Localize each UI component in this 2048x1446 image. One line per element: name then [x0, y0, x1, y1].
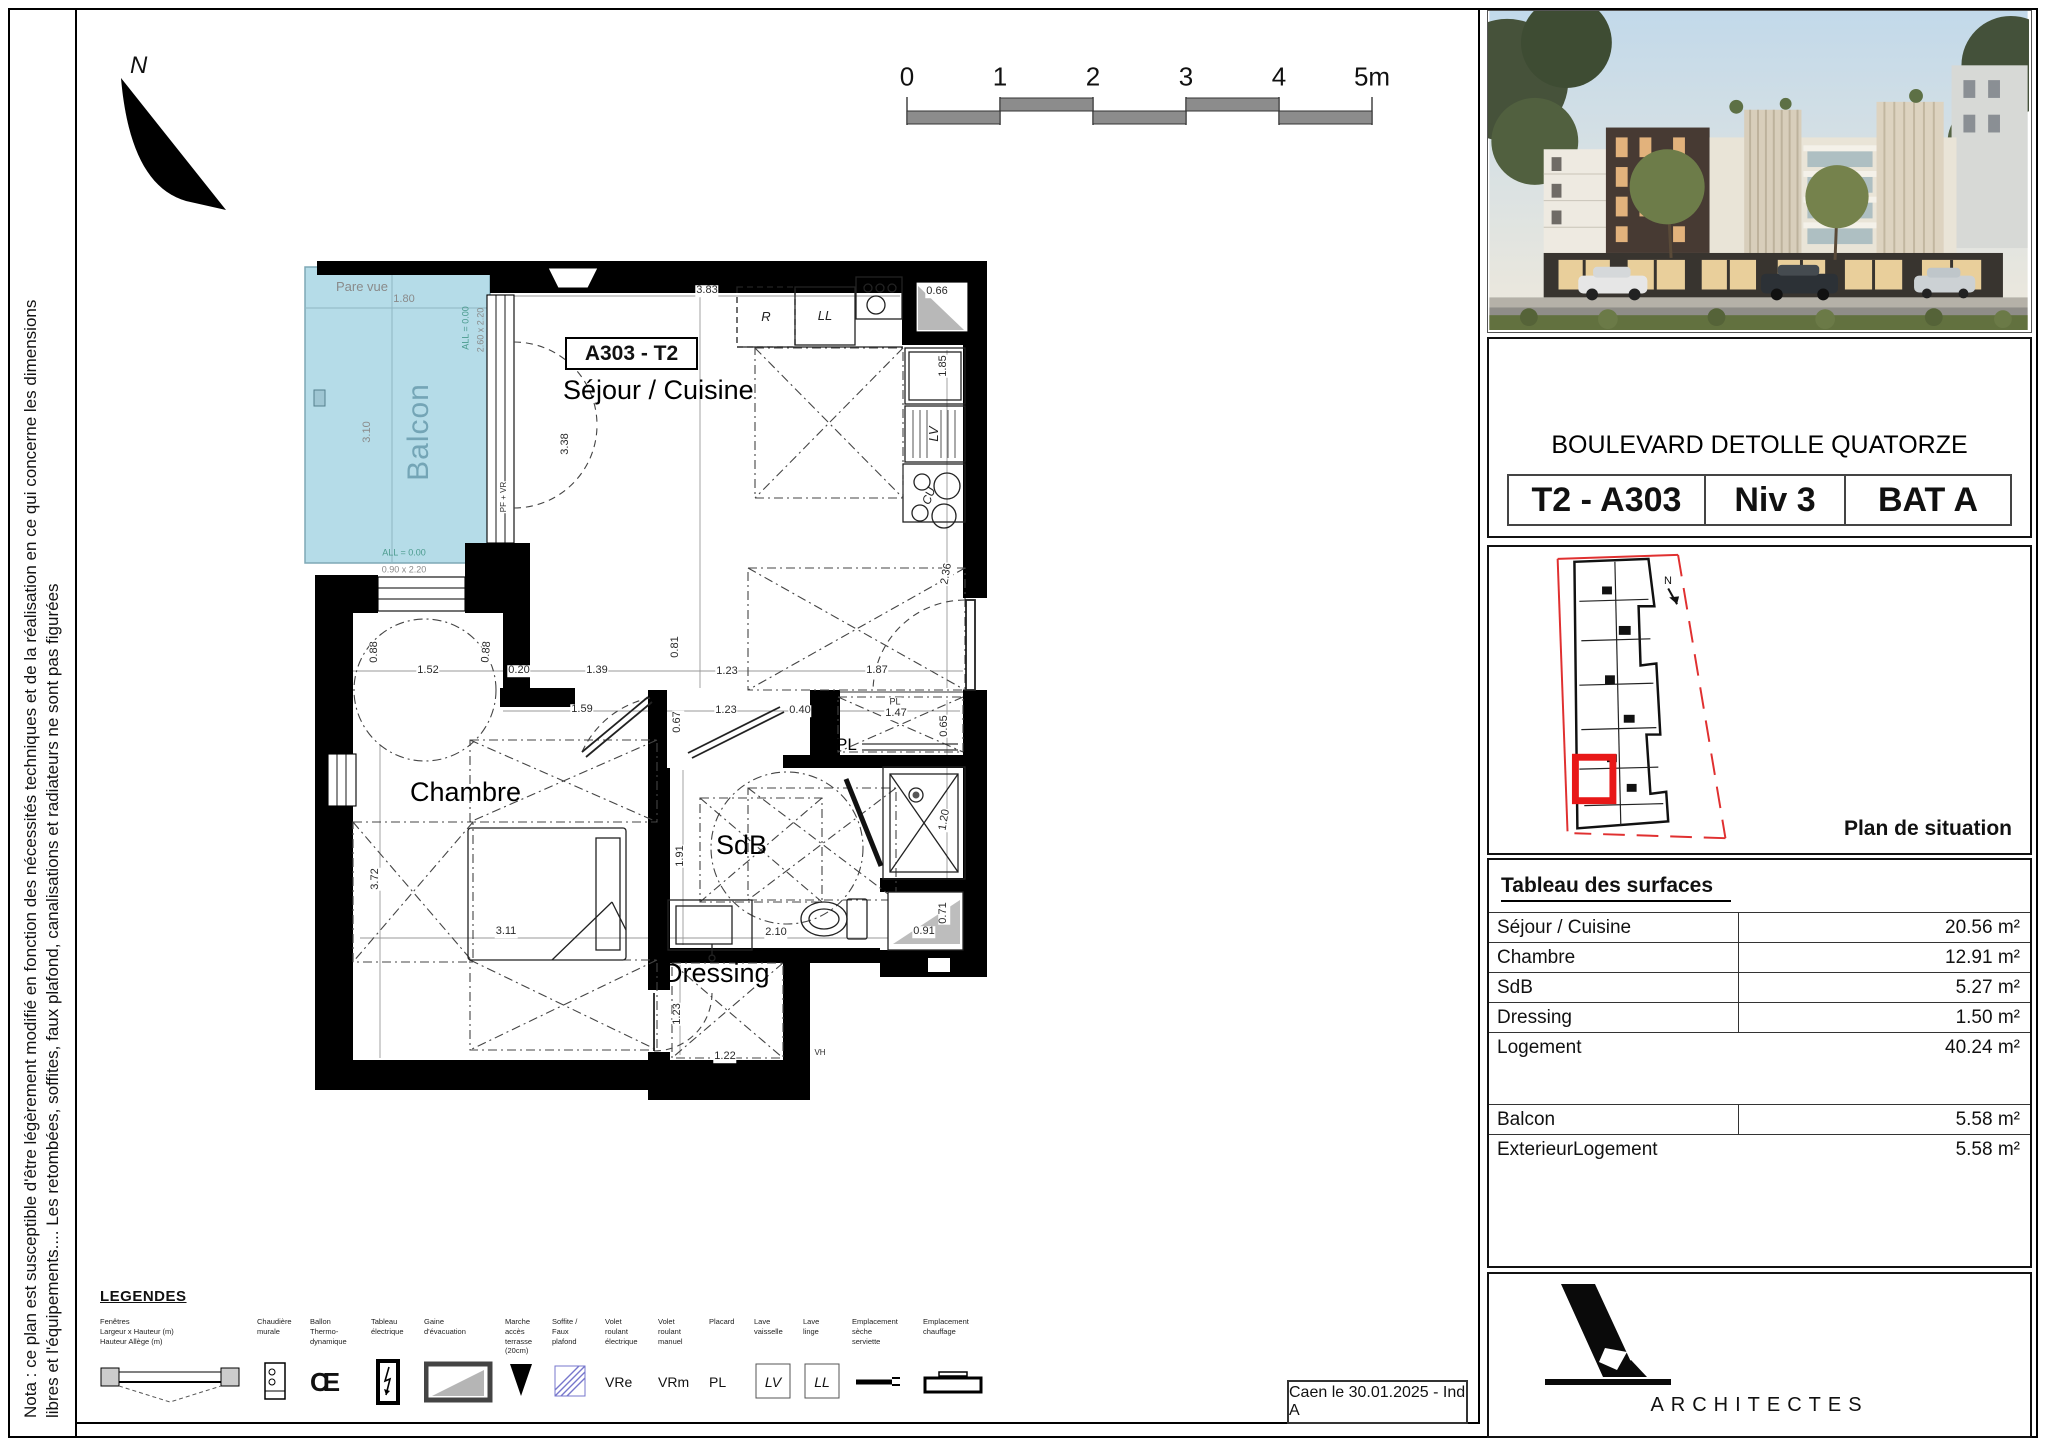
dimension-label: 0.66 [925, 286, 948, 298]
room-label-balcon: Balcon [402, 383, 436, 481]
towel-dryer-icon [852, 1359, 916, 1405]
scale-label-1: 1 [993, 62, 1007, 93]
level-cell: Niv 3 [1704, 476, 1844, 524]
legend-item-soffite: Soffite / Faux plafond [552, 1317, 598, 1405]
dimension-label: 0.40 [788, 705, 811, 717]
soffit-hatch-icon [552, 1359, 598, 1405]
electric-panel-icon [371, 1359, 417, 1405]
scale-label-4: 4 [1272, 62, 1286, 93]
svg-text:LL: LL [814, 1374, 830, 1390]
dimension-label: 0.71 [938, 901, 950, 924]
building-render [1487, 10, 2032, 333]
bathroom-sink [668, 900, 752, 950]
plan-sheet: Nota : ce plan est susceptible d'être lé… [0, 0, 2048, 1446]
situation-caption: Plan de situation [1844, 817, 2012, 841]
dimension-label: 1.23 [715, 666, 738, 678]
north-label: N [130, 52, 147, 80]
scale-label-0: 0 [900, 62, 914, 93]
situation-plan: N Plan de situation [1487, 545, 2032, 855]
vh-label: VH [813, 1049, 826, 1057]
surfaces-title: Tableau des surfaces [1501, 874, 1731, 902]
vre-symbol: VRe [605, 1374, 632, 1390]
dimension-label: 0.81 [670, 635, 682, 658]
dimension-label: 3.11 [495, 926, 518, 938]
architect-name: ARCHITECTES [1489, 1394, 2030, 1417]
vrm-symbol: VRm [658, 1374, 689, 1390]
surface-row-exterieur: ExterieurLogement5.58 m² [1489, 1135, 2030, 1164]
surface-row-total: Logement40.24 m² [1489, 1032, 2030, 1062]
legend-item-fenetres: Fenêtres Largeur x Hauteur (m) Hauteur A… [100, 1317, 250, 1405]
toilet-tank [847, 899, 867, 939]
scale-label-5m: 5m [1354, 62, 1390, 93]
duct-symbol-icon [424, 1359, 498, 1405]
window-symbol-icon [100, 1359, 250, 1405]
dimension-label: 0.91 [912, 926, 935, 938]
legend-item-chaudiere: Chaudière murale [257, 1317, 303, 1405]
legend-item-vre: Volet roulant électrique VRe [605, 1317, 651, 1405]
project-title: BOULEVARD DETOLLE QUATORZE [1489, 431, 2030, 460]
legend-item-lv: Lave vaisselle LV [754, 1317, 796, 1405]
dimension-label: ALL = 0.00 [461, 305, 470, 350]
surface-row: SdB5.27 m² [1489, 972, 2030, 1002]
dimension-label: 1.39 [585, 665, 608, 677]
surfaces-table: Tableau des surfaces Séjour / Cuisine20.… [1487, 858, 2032, 1268]
architect-logo-box: ARCHITECTES [1487, 1272, 2032, 1438]
dimension-label: 0.88 [369, 640, 381, 663]
washing-machine-label: LL [817, 309, 833, 323]
bed [468, 828, 626, 960]
pl-symbol: PL [709, 1374, 726, 1390]
washer-symbol: LL [803, 1359, 845, 1405]
dimension-label: 1.85 [938, 354, 950, 377]
dimension-label: 1.47 [884, 708, 907, 720]
scale-label-2: 2 [1086, 62, 1100, 93]
towel-radiator [846, 779, 881, 866]
unit-highlight [1575, 757, 1613, 800]
dimension-label: 0.65 [939, 714, 951, 737]
legend-item-gaine: Gaine d'évacuation [424, 1317, 498, 1405]
worktop [905, 348, 965, 404]
dimension-label: 0.20 [507, 665, 530, 677]
legend-item-tableau-electrique: Tableau électrique [371, 1317, 417, 1405]
boiler-icon [257, 1359, 303, 1405]
surface-row-balcon: Balcon5.58 m² [1489, 1104, 2030, 1135]
room-label-placard: PL [836, 735, 857, 755]
dishwasher-symbol: LV [754, 1359, 796, 1405]
heater-icon [923, 1359, 987, 1405]
dimension-label: 1.23 [672, 1002, 684, 1025]
dimension-label: 1.22 [713, 1051, 736, 1063]
legend-item-vrm: Volet roulant manuel VRm [658, 1317, 702, 1405]
pare-vue-label: Pare vue [335, 280, 389, 294]
pf-vr-label: PF + VR [500, 481, 508, 513]
unit-cell: T2 - A303 [1509, 476, 1704, 524]
scale-label-3: 3 [1179, 62, 1193, 93]
room-label-sejour: Séjour / Cuisine [563, 375, 754, 406]
toilet [801, 902, 847, 936]
dimension-label: 0.67 [672, 710, 684, 733]
dimension-label: 3.72 [370, 867, 382, 890]
thermo-tank-icon: CE [310, 1359, 364, 1405]
legend-item-ballon: Ballon Thermo- dynamique CE [310, 1317, 364, 1405]
dimension-label: 3.38 [560, 432, 572, 455]
situation-north-label: N [1664, 575, 1672, 587]
dimension-label: ALL = 0.00 [381, 548, 426, 557]
legend-item-ll: Lave linge LL [803, 1317, 845, 1405]
terrace-step-icon [505, 1359, 545, 1405]
room-label-chambre: Chambre [410, 777, 521, 808]
balcony-drain-icon [314, 390, 325, 406]
legend-item-placard: Placard PL [709, 1317, 747, 1405]
dimension-label: 3.10 [362, 420, 374, 443]
surface-row: Séjour / Cuisine20.56 m² [1489, 912, 2030, 942]
room-label-dressing: Dressing [663, 958, 770, 989]
room-label-sdb: SdB [716, 830, 767, 861]
dimension-label: 1.23 [714, 705, 737, 717]
legend-item-marche: Marche accès terrasse (20cm) [505, 1317, 545, 1405]
legend: LEGENDES Fenêtres Largeur x Hauteur (m) … [100, 1288, 900, 1405]
legend-title: LEGENDES [100, 1288, 900, 1305]
dimension-label: 0.90 x 2.20 [381, 565, 428, 574]
svg-text:LV: LV [765, 1374, 783, 1390]
pl-closet-dim-label: PL [888, 697, 901, 706]
legend-item-seche-serviette: Emplacement sèche serviette [852, 1317, 916, 1405]
scale-bar [907, 98, 1372, 124]
dimension-label: 2.60 x 2.20 [476, 307, 485, 354]
dimension-label: 1.91 [675, 844, 687, 867]
dimension-label: 1.87 [865, 665, 888, 677]
architect-logo-icon [1489, 1280, 1709, 1392]
dimension-label: 1.52 [416, 665, 439, 677]
dimension-label: 1.80 [392, 294, 415, 306]
unit-info-table: T2 - A303 Niv 3 BAT A [1507, 474, 2012, 526]
dimension-label: 1.59 [570, 704, 593, 716]
unit-id-box: A303 - T2 [565, 337, 698, 370]
title-block: BOULEVARD DETOLLE QUATORZE T2 - A303 Niv… [1487, 337, 2032, 538]
north-arrow-icon [121, 78, 226, 210]
dimension-label: 3.83 [695, 285, 718, 297]
surface-row: Dressing1.50 m² [1489, 1002, 2030, 1032]
fridge-label: R [760, 310, 771, 324]
dishwasher-label: LV [927, 425, 941, 442]
date-reference-box: Caen le 30.01.2025 - Ind A [1287, 1380, 1468, 1424]
legend-item-chauffage: Emplacement chauffage [923, 1317, 987, 1405]
dimension-label: 2.10 [764, 927, 787, 939]
dimension-label: 0.88 [480, 640, 494, 664]
building-cell: BAT A [1844, 476, 2010, 524]
surface-row: Chambre12.91 m² [1489, 942, 2030, 972]
